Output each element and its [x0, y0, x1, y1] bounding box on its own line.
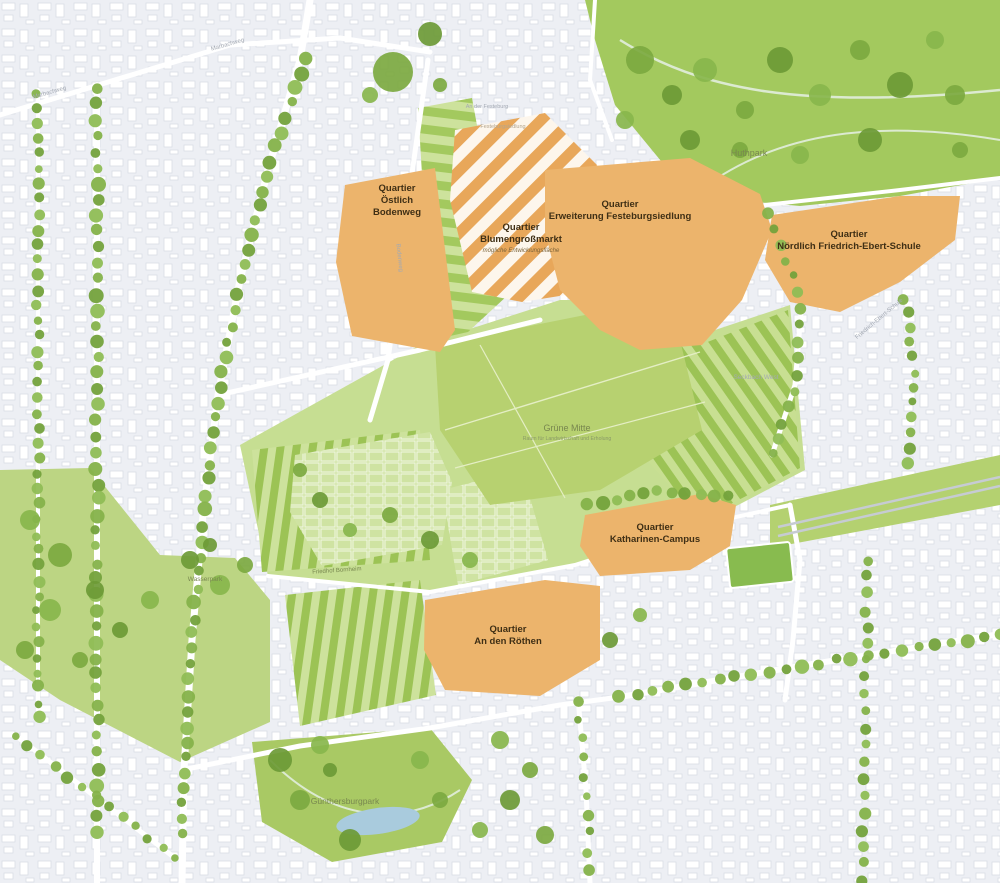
quarter-label-line: Quartier	[637, 522, 674, 533]
quarter-label-line: Bodenweg	[373, 207, 421, 218]
guenthersburgpark-label: Günthersburgpark	[311, 796, 380, 806]
quarter-label-line: Nördlich Friedrich-Ebert-Schule	[777, 241, 921, 252]
gruene-mitte-label: Grüne Mitte	[543, 423, 590, 433]
city-map-svg: Quartier Östlich Bodenweg Quartier Blume…	[0, 0, 1000, 883]
seckbach-west-label: Seckbach West	[733, 374, 778, 381]
quarter-label-line: Erweiterung Festeburgsiedlung	[549, 211, 692, 222]
quarter-label-subtitle: mögliche Entwicklungsfläche	[483, 248, 560, 254]
gruene-mitte-subtitle: Raum für Landwirtschaft und Erholung	[523, 436, 612, 442]
festeburgsiedlung-label: Festeburgsiedlung	[480, 124, 525, 130]
quarter-label-line: Quartier	[379, 183, 416, 194]
huthpark-label: Huthpark	[731, 148, 768, 158]
an-der-festeburg-label: An der Festeburg	[466, 104, 509, 110]
quarter-label-line: Quartier	[503, 222, 540, 233]
quarter-label-line: Quartier	[831, 229, 868, 240]
map-canvas: Quartier Östlich Bodenweg Quartier Blume…	[0, 0, 1000, 883]
wasserpark-label: Wasserpark	[188, 576, 223, 583]
quarter-label-line: Quartier	[602, 199, 639, 210]
quarter-label-line: Katharinen-Campus	[610, 534, 700, 545]
quarter-label-line: An den Röthen	[474, 636, 542, 647]
quarter-label-line: Quartier	[490, 624, 527, 635]
sports-pitch	[726, 542, 794, 588]
quarter-label-line: Blumengroßmarkt	[480, 234, 563, 245]
quarter-label-line: Östlich	[381, 195, 413, 206]
